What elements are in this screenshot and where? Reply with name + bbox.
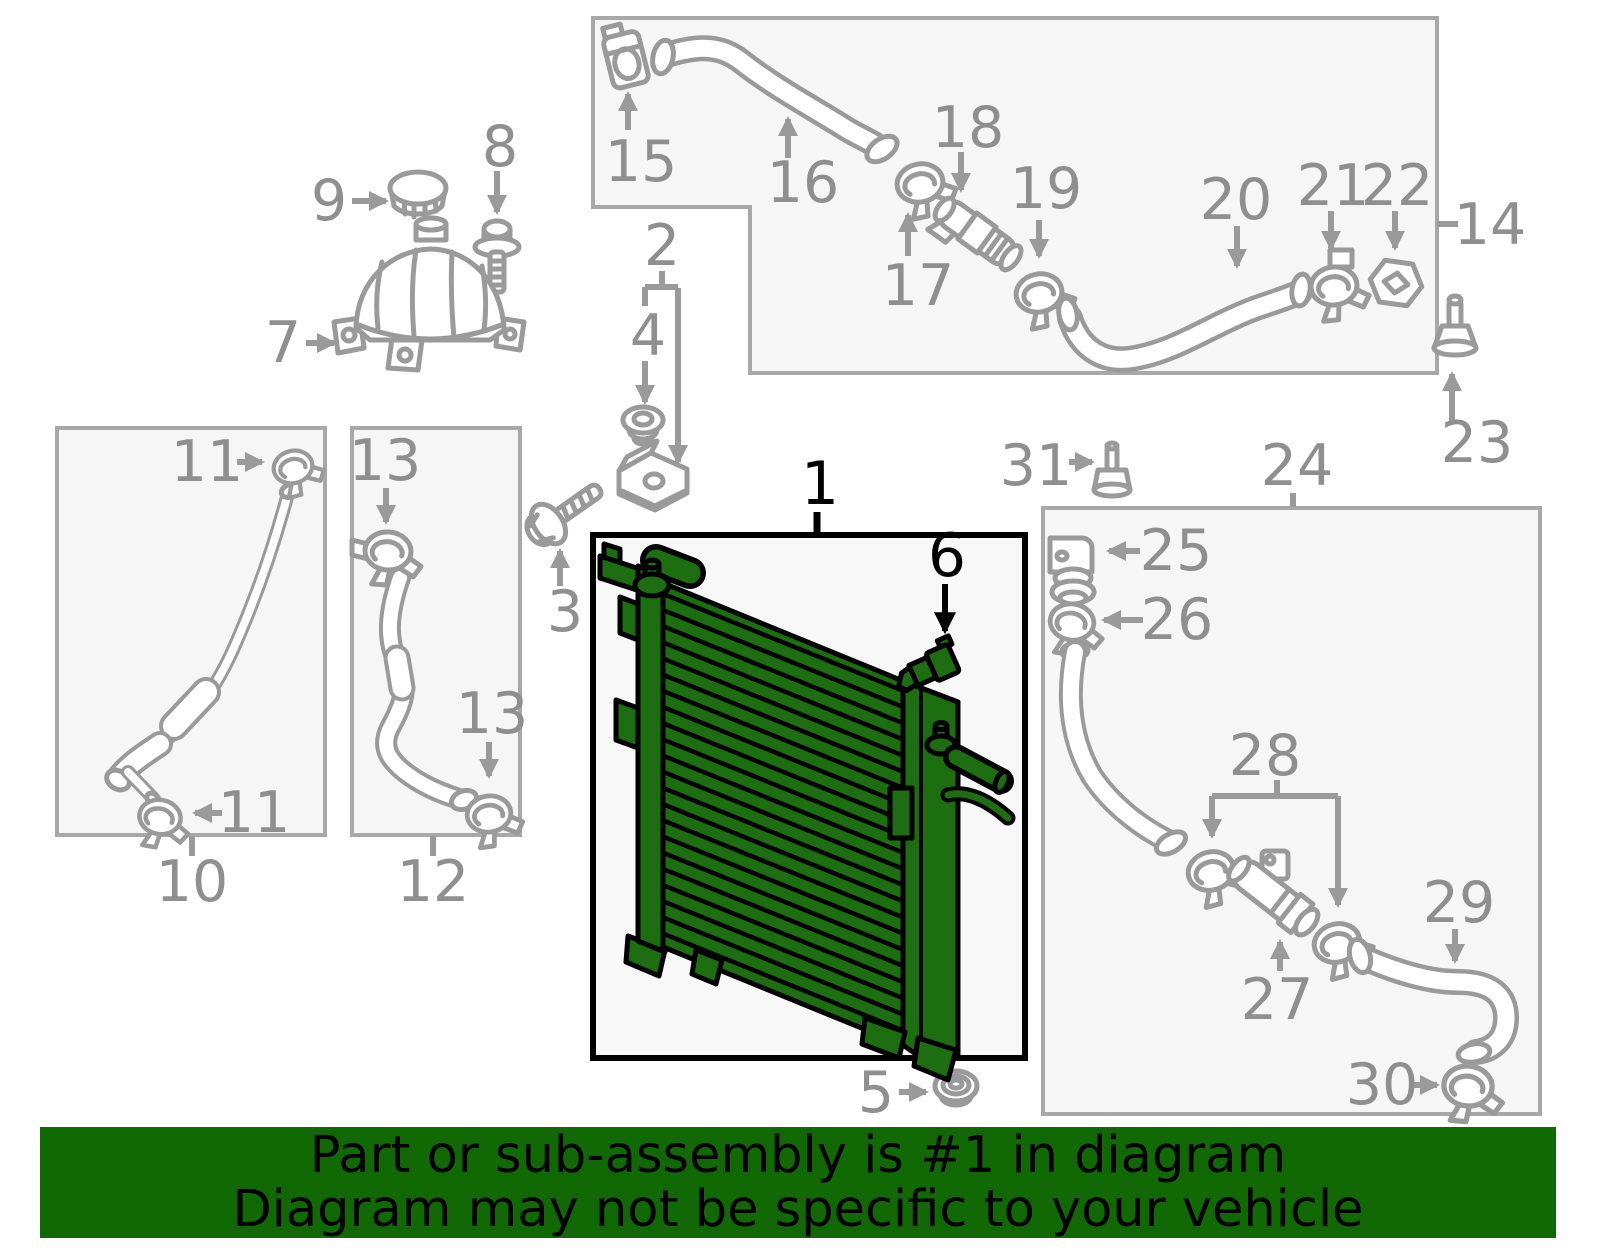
callout-label-21[interactable]: 21 [1297,153,1370,219]
callout-label-10[interactable]: 10 [156,849,229,915]
highlight-banner: Part or sub-assembly is #1 in diagram Di… [40,1127,1556,1238]
elbow-fitting-icon-25 [1050,538,1094,604]
callout-label-31[interactable]: 31 [1000,433,1073,499]
callout-label-3[interactable]: 3 [547,579,583,645]
banner-line2: Diagram may not be specific to your vehi… [40,1183,1556,1237]
reservoir-cap-icon [390,172,446,217]
grommet-icon-4 [623,407,663,444]
callout-label-25[interactable]: 25 [1140,518,1213,584]
callout-label-26[interactable]: 26 [1141,587,1214,653]
callout-label-5[interactable]: 5 [858,1060,894,1126]
callout-label-22[interactable]: 22 [1361,153,1434,219]
callout-label-4[interactable]: 4 [630,303,666,369]
callout-label-2[interactable]: 2 [644,213,680,279]
pin-icon-31 [1094,443,1130,496]
bolt-icon-23 [1434,296,1476,355]
callout-label-11a[interactable]: 11 [171,429,244,495]
callout-label-11b[interactable]: 11 [218,780,291,846]
callout-label-9[interactable]: 9 [311,168,347,234]
callout-label-29[interactable]: 29 [1423,870,1496,936]
banner-line1: Part or sub-assembly is #1 in diagram [40,1129,1556,1183]
callout-label-28[interactable]: 28 [1229,723,1302,789]
callout-label-18[interactable]: 18 [932,95,1005,161]
parts-diagram: 1 2 3 4 5 6 7 8 9 10 11 11 12 13 13 14 1… [0,0,1600,1253]
callout-label-14[interactable]: 14 [1454,192,1527,258]
callout-label-8[interactable]: 8 [482,114,518,180]
callout-label-16[interactable]: 16 [767,150,840,216]
callout-label-13a[interactable]: 13 [349,428,422,494]
callout-label-24[interactable]: 24 [1261,433,1334,499]
clamp-tab-icon [1330,250,1352,267]
callout-label-13b[interactable]: 13 [456,681,529,747]
callout-label-17[interactable]: 17 [882,253,955,319]
callout-label-27[interactable]: 27 [1241,967,1314,1033]
callout-label-12[interactable]: 12 [397,849,470,915]
callout-label-1[interactable]: 1 [801,449,839,519]
callout-label-19[interactable]: 19 [1010,156,1083,222]
callout-label-15[interactable]: 15 [605,129,678,195]
callout-label-30[interactable]: 30 [1346,1052,1419,1118]
callout-label-23[interactable]: 23 [1441,410,1514,476]
callout-label-7[interactable]: 7 [265,310,301,376]
callout-label-20[interactable]: 20 [1200,167,1273,233]
callout-label-6[interactable]: 6 [928,521,966,591]
